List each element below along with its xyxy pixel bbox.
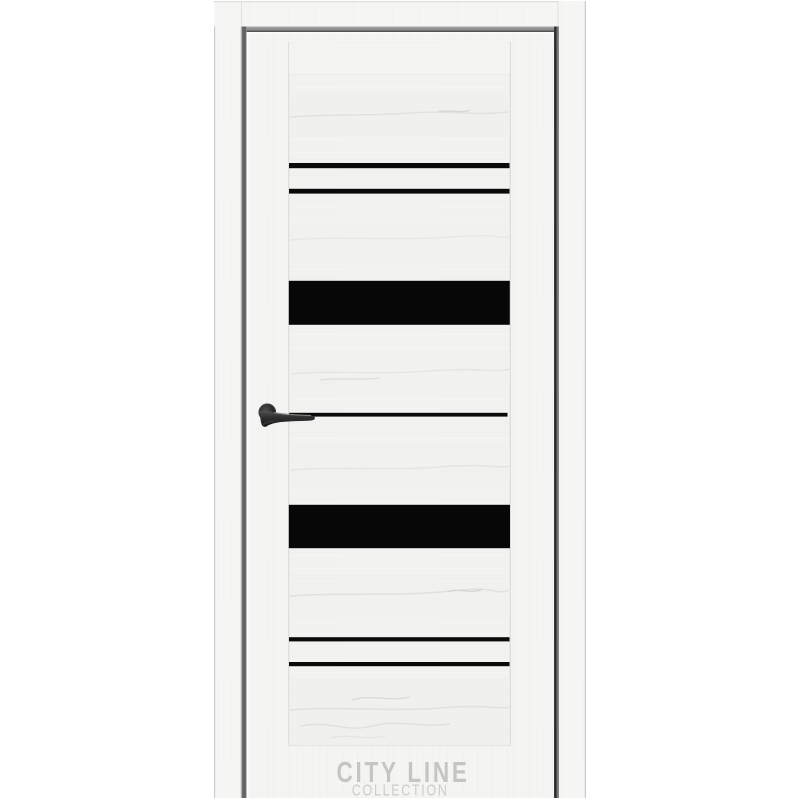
svg-text:COLLECTION: COLLECTION <box>352 781 449 799</box>
